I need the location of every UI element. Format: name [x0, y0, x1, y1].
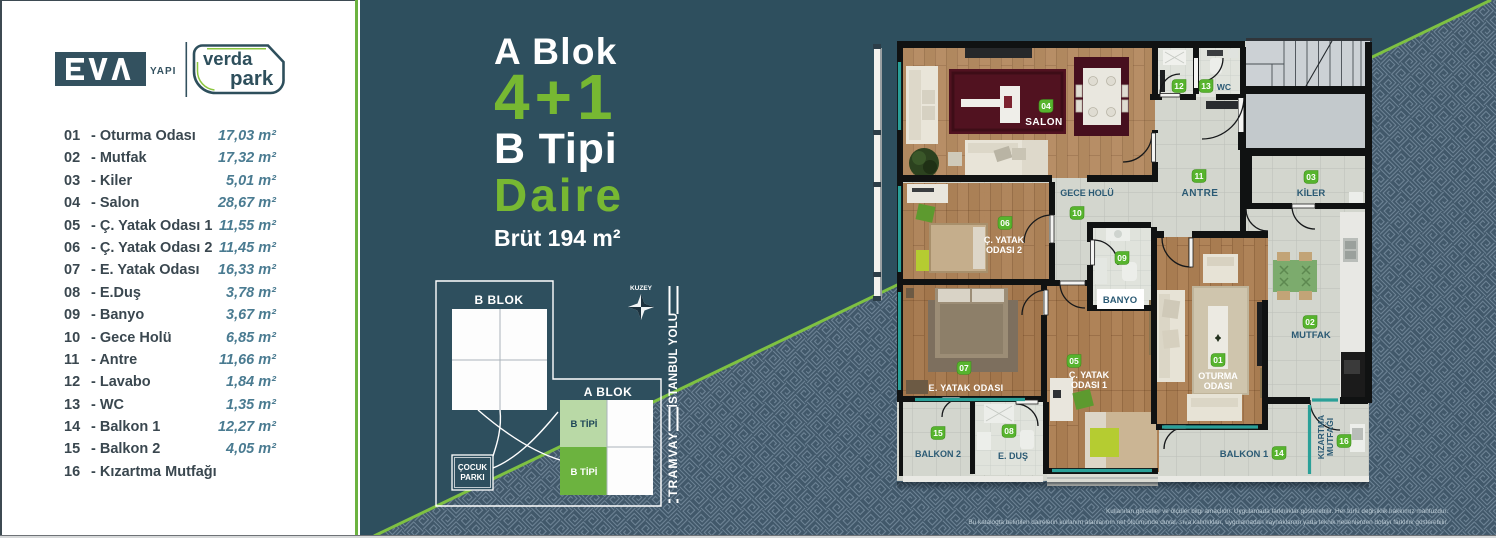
- svg-text:Ç. YATAK: Ç. YATAK: [984, 235, 1025, 245]
- svg-text:Ç. YATAK: Ç. YATAK: [1069, 370, 1110, 380]
- svg-text:02: 02: [1305, 317, 1315, 327]
- svg-text:SALON: SALON: [1025, 117, 1063, 128]
- svg-text:05: 05: [1069, 356, 1079, 366]
- svg-text:park: park: [230, 67, 274, 90]
- svg-text:OTURMA: OTURMA: [1198, 371, 1238, 381]
- svg-text:A BLOK: A BLOK: [584, 385, 633, 399]
- svg-text:E. YATAK ODASI: E. YATAK ODASI: [929, 383, 1004, 393]
- svg-text:BALKON 2: BALKON 2: [915, 449, 961, 459]
- svg-text:B TİPİ: B TİPİ: [571, 419, 598, 430]
- svg-text:ANTRE: ANTRE: [1182, 188, 1219, 199]
- svg-text:ODASI 1: ODASI 1: [1071, 380, 1107, 390]
- svg-text:16: 16: [1339, 436, 1349, 446]
- svg-text:ODASI 2: ODASI 2: [986, 245, 1022, 255]
- svg-text:11: 11: [1195, 171, 1204, 181]
- svg-text:B TİPİ: B TİPİ: [571, 467, 598, 478]
- svg-text:MUTFAK: MUTFAK: [1291, 330, 1331, 341]
- svg-text:WC: WC: [1217, 82, 1231, 92]
- svg-text:15: 15: [933, 428, 943, 438]
- svg-text:03: 03: [1306, 172, 1316, 182]
- svg-text:14: 14: [1274, 448, 1284, 458]
- svg-text:10: 10: [1072, 208, 1082, 218]
- svg-text:BALKON 1: BALKON 1: [1220, 449, 1269, 460]
- svg-text:verda: verda: [203, 48, 253, 69]
- svg-text:09: 09: [1117, 253, 1127, 263]
- svg-text:01: 01: [1213, 355, 1223, 365]
- svg-text:YAPI: YAPI: [150, 66, 176, 77]
- svg-text:07: 07: [959, 363, 969, 373]
- svg-text:MUTFAĞI: MUTFAĞI: [1324, 418, 1335, 456]
- svg-text:İSTANBUL YOLU: İSTANBUL YOLU: [667, 313, 680, 408]
- svg-text:GECE HOLÜ: GECE HOLÜ: [1060, 188, 1114, 198]
- svg-text:B BLOK: B BLOK: [475, 293, 524, 307]
- svg-text:13: 13: [1201, 81, 1211, 91]
- svg-text:06: 06: [1000, 218, 1010, 228]
- svg-text:KUZEY: KUZEY: [630, 285, 653, 292]
- svg-text:08: 08: [1004, 426, 1014, 436]
- svg-text:04: 04: [1041, 101, 1051, 111]
- svg-text:ODASI: ODASI: [1204, 381, 1233, 391]
- svg-text:ÇOCUK: ÇOCUK: [458, 463, 488, 472]
- svg-text:12: 12: [1174, 81, 1184, 91]
- svg-text:BANYO: BANYO: [1103, 295, 1137, 306]
- svg-text:E. DUŞ: E. DUŞ: [998, 451, 1028, 461]
- svg-text:KİLER: KİLER: [1297, 188, 1326, 199]
- svg-text:TRAMVAY: TRAMVAY: [666, 431, 680, 497]
- svg-text:PARKI: PARKI: [460, 473, 484, 482]
